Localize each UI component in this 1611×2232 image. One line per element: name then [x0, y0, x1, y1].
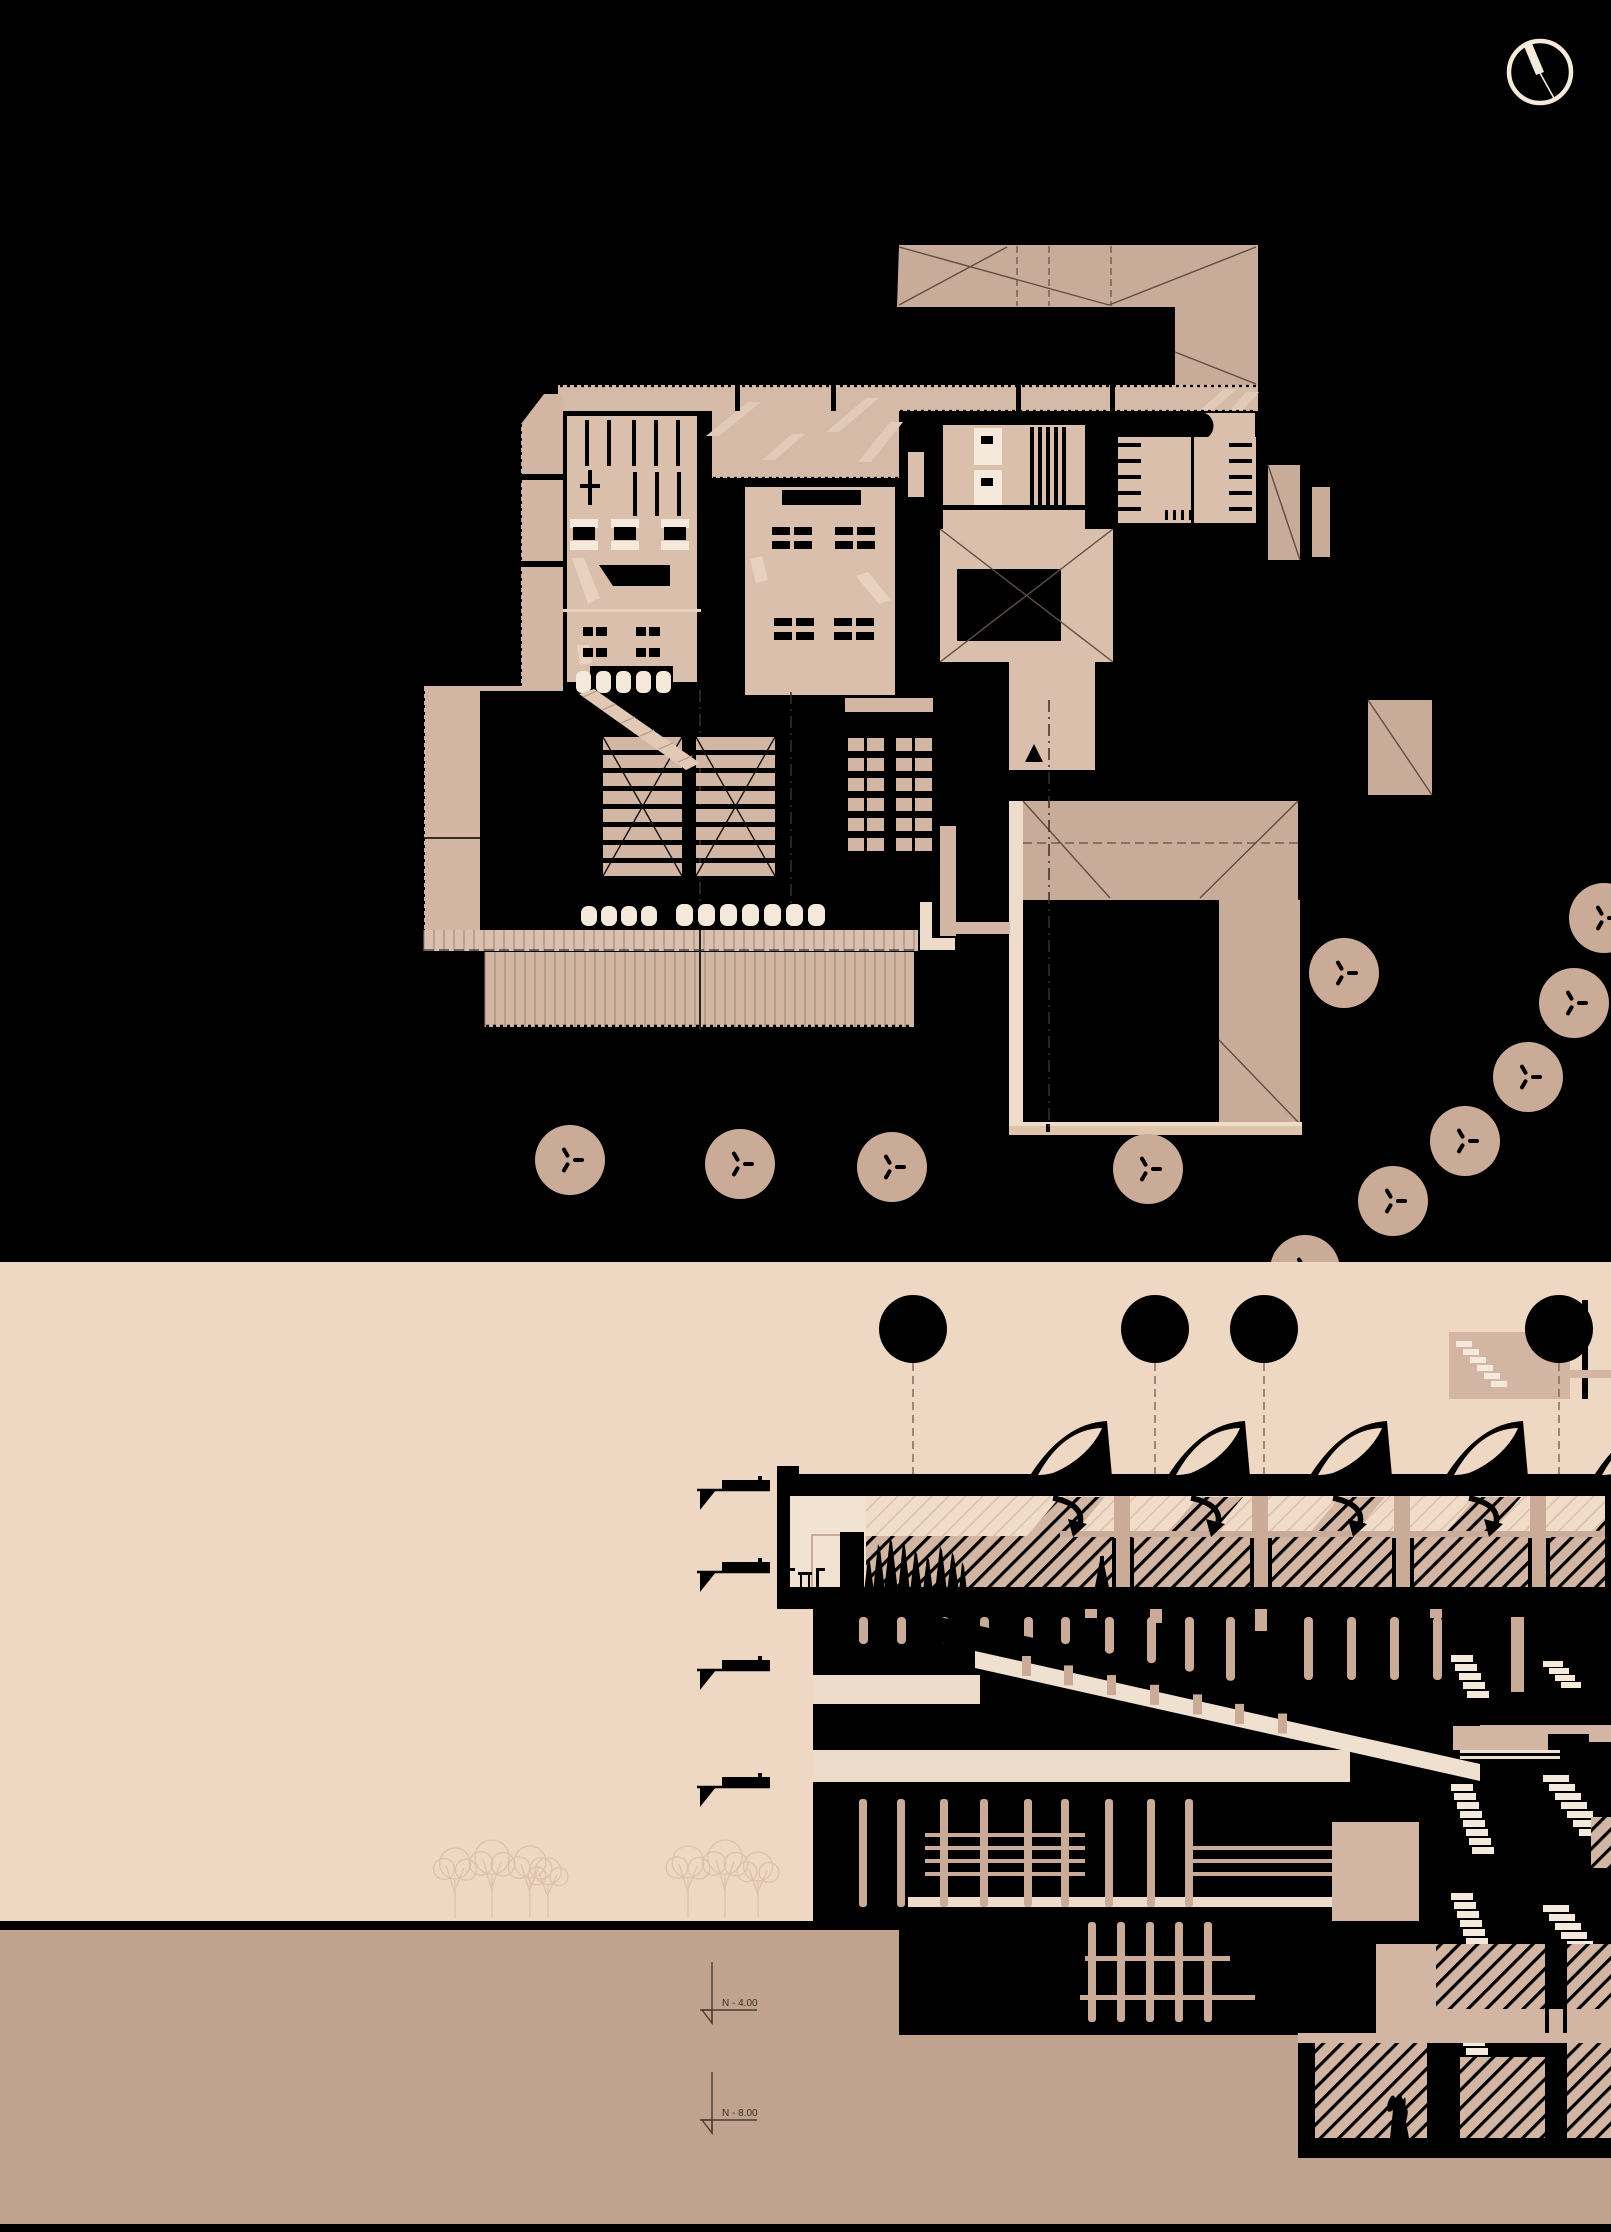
svg-text:N - 8.00: N - 8.00 [722, 2108, 758, 2119]
svg-text:N - 4.00: N - 4.00 [722, 1998, 758, 2009]
